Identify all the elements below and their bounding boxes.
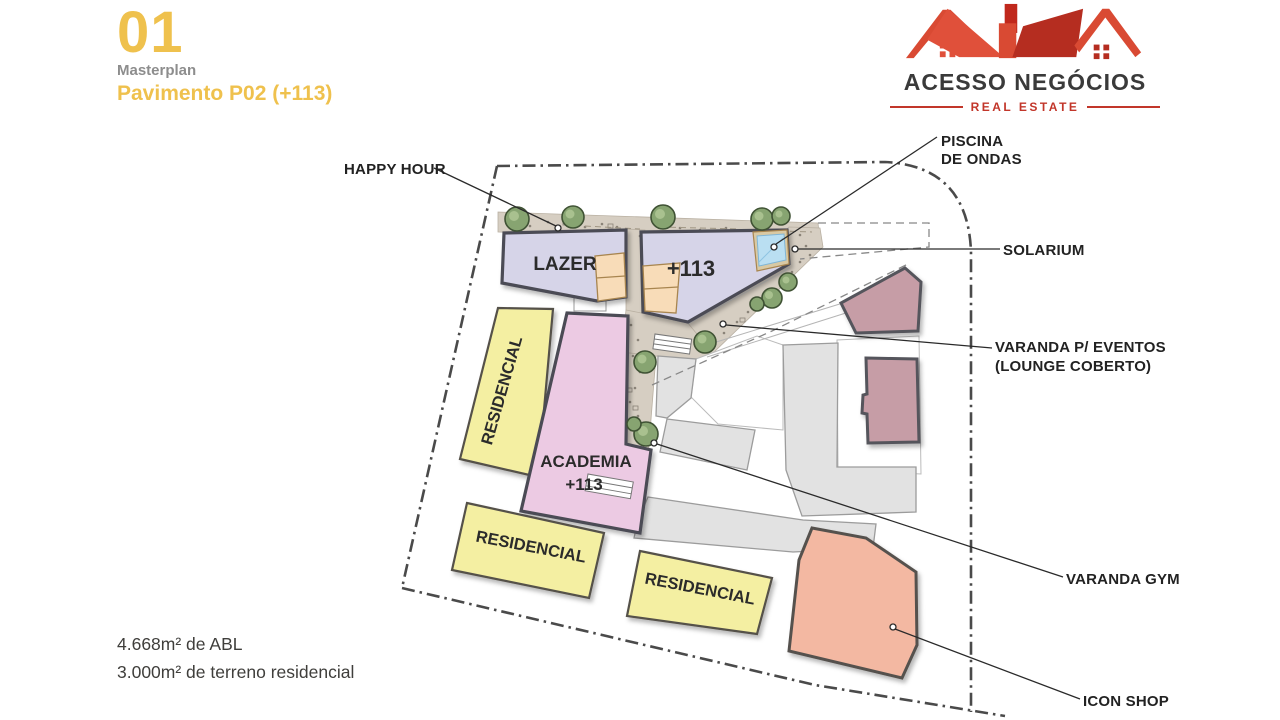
tree-icon bbox=[505, 207, 529, 231]
callout-icon-shop: ICON SHOP bbox=[1083, 693, 1169, 710]
area-stats: 4.668m² de ABL 3.000m² de terreno reside… bbox=[117, 630, 354, 686]
callout-piscina-line2: DE ONDAS bbox=[941, 151, 1022, 168]
label-lazer: LAZER bbox=[533, 254, 597, 275]
callout-varanda-eventos-line2: (LOUNGE COBERTO) bbox=[995, 358, 1151, 375]
tree-icon bbox=[651, 205, 675, 229]
slide-number: 01 bbox=[117, 4, 332, 62]
tree-icon bbox=[762, 288, 782, 308]
callout-varanda-gym: VARANDA GYM bbox=[1066, 571, 1180, 588]
tree-icon bbox=[772, 207, 790, 225]
slide-subtitle: Masterplan bbox=[117, 62, 332, 79]
stat-terreno: 3.000m² de terreno residencial bbox=[117, 658, 354, 686]
label-academia-line1: ACADEMIA bbox=[540, 452, 632, 471]
brand-tagline: REAL ESTATE bbox=[963, 100, 1088, 114]
company-logo: ACESSO NEGÓCIOS REAL ESTATE bbox=[890, 2, 1160, 114]
stat-abl: 4.668m² de ABL bbox=[117, 630, 354, 658]
callout-varanda-eventos-line1: VARANDA P/ EVENTOS bbox=[995, 339, 1166, 356]
tree-icon bbox=[750, 297, 764, 311]
tree-icon bbox=[694, 331, 716, 353]
label-academia-line2: +113 bbox=[565, 475, 602, 494]
tree-icon bbox=[562, 206, 584, 228]
building-icon-shop bbox=[789, 528, 917, 678]
slide-header: 01 Masterplan Pavimento P02 (+113) bbox=[117, 4, 332, 106]
label-plus113: +113 bbox=[667, 256, 715, 281]
brand-name: ACESSO NEGÓCIOS bbox=[890, 69, 1160, 96]
tree-icon bbox=[751, 208, 773, 230]
callout-happy-hour: HAPPY HOUR bbox=[344, 161, 446, 178]
tree-icon bbox=[634, 351, 656, 373]
tree-icon bbox=[779, 273, 797, 291]
building-mauve-block bbox=[862, 358, 919, 443]
callout-piscina-line1: PISCINA bbox=[941, 133, 1003, 150]
tree-icon bbox=[627, 417, 641, 431]
brand-tagline-row: REAL ESTATE bbox=[890, 100, 1160, 114]
callout-solarium: SOLARIUM bbox=[1003, 242, 1085, 259]
logo-houses-icon bbox=[900, 2, 1150, 62]
piscina-de-ondas-pool bbox=[753, 230, 789, 271]
page-title: Pavimento P02 (+113) bbox=[117, 82, 332, 106]
tagline-rule-left bbox=[890, 106, 963, 108]
tagline-rule-right bbox=[1087, 106, 1160, 108]
